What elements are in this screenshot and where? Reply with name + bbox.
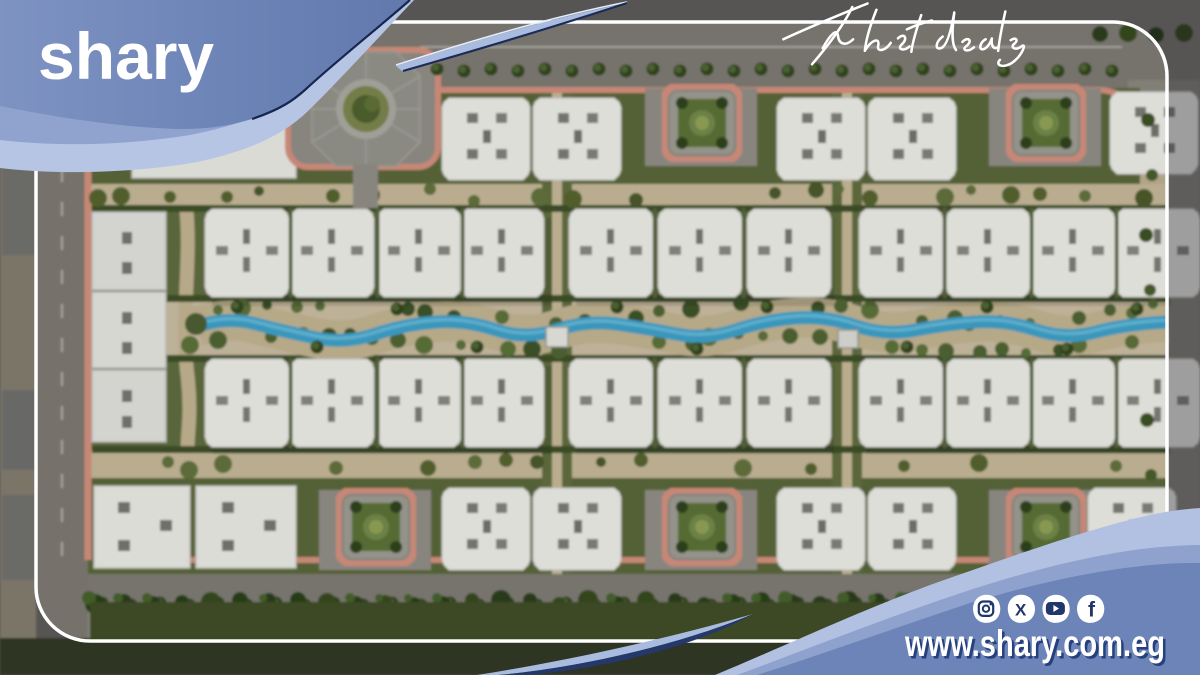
svg-text:www.shary.com.eg: www.shary.com.eg	[904, 623, 1165, 664]
svg-text:f: f	[1088, 599, 1096, 622]
svg-text:X: X	[1015, 601, 1027, 620]
svg-text:shary: shary	[38, 19, 214, 93]
